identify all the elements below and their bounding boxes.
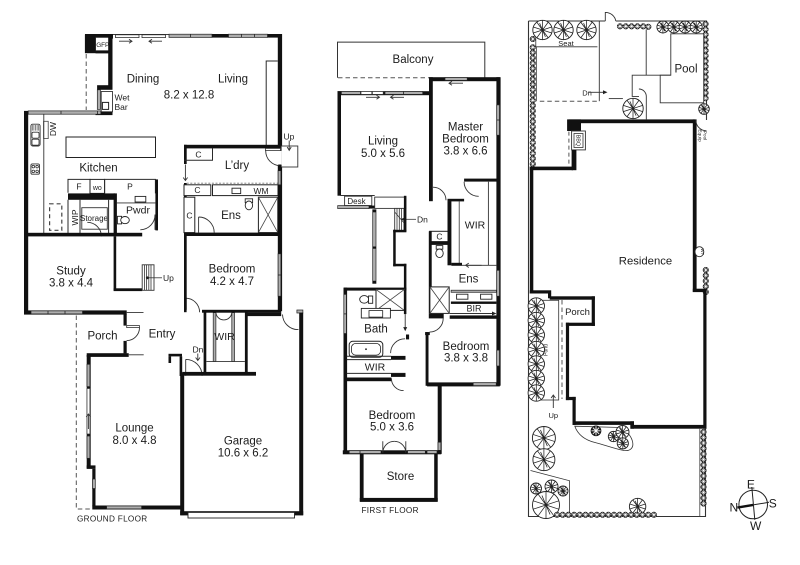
svg-text:BBQ: BBQ — [575, 135, 581, 147]
svg-text:WIR: WIR — [214, 331, 235, 343]
svg-text:GROUND FLOOR: GROUND FLOOR — [77, 515, 147, 524]
svg-text:Porch: Porch — [87, 331, 117, 343]
svg-text:Bedroom4.2 x 4.7: Bedroom4.2 x 4.7 — [209, 264, 256, 289]
svg-text:C: C — [186, 210, 192, 220]
svg-text:BIR: BIR — [466, 304, 482, 314]
svg-text:Garage10.6 x 6.2: Garage10.6 x 6.2 — [218, 436, 269, 460]
svg-text:C: C — [436, 232, 442, 242]
svg-text:WM: WM — [254, 186, 269, 196]
svg-text:Dn: Dn — [193, 344, 204, 354]
svg-text:Storage: Storage — [80, 214, 109, 223]
svg-text:Dn: Dn — [582, 88, 592, 97]
svg-text:Dn: Dn — [417, 214, 428, 224]
svg-text:Up: Up — [163, 273, 174, 283]
svg-text:Living: Living — [218, 74, 248, 86]
svg-text:Seat: Seat — [558, 39, 574, 48]
svg-text:W: W — [750, 519, 762, 533]
svg-text:GFP: GFP — [96, 42, 109, 49]
svg-text:C: C — [194, 185, 200, 195]
svg-text:PoolEquip: PoolEquip — [697, 129, 708, 142]
svg-text:S: S — [769, 497, 777, 511]
svg-text:Bedroom5.0 x 3.6: Bedroom5.0 x 3.6 — [369, 410, 416, 434]
svg-text:Desk: Desk — [347, 197, 366, 206]
svg-text:Kitchen: Kitchen — [79, 163, 117, 175]
svg-text:Porch: Porch — [565, 307, 590, 318]
svg-text:Entry: Entry — [149, 329, 176, 341]
svg-text:L’dry: L’dry — [225, 160, 250, 172]
svg-text:Pwdr: Pwdr — [126, 205, 150, 217]
svg-text:Bath: Bath — [364, 324, 388, 336]
svg-text:WT: WT — [700, 248, 705, 255]
svg-text:wo: wo — [92, 185, 102, 192]
svg-text:WIR: WIR — [465, 220, 486, 232]
svg-text:Up: Up — [549, 411, 559, 420]
svg-text:MasterBedroom3.8 x 6.6: MasterBedroom3.8 x 6.6 — [442, 122, 489, 158]
svg-text:Bedroom3.8 x 3.8: Bedroom3.8 x 3.8 — [443, 341, 490, 365]
svg-text:Store: Store — [387, 471, 415, 483]
svg-text:WIR: WIR — [365, 362, 386, 374]
svg-text:E: E — [747, 478, 755, 492]
svg-text:Ens: Ens — [221, 210, 241, 222]
svg-text:Balcony: Balcony — [393, 54, 434, 66]
svg-text:Dining: Dining — [127, 74, 160, 86]
svg-text:DW: DW — [48, 122, 58, 136]
svg-text:C: C — [195, 149, 201, 159]
svg-text:Pool: Pool — [674, 64, 697, 76]
svg-text:F: F — [76, 182, 81, 192]
svg-text:N: N — [729, 501, 738, 515]
svg-text:Residence: Residence — [619, 256, 672, 268]
svg-text:Ens: Ens — [459, 274, 479, 286]
svg-text:P: P — [127, 182, 133, 192]
svg-text:Lounge8.0 x 4.8: Lounge8.0 x 4.8 — [112, 423, 156, 448]
svg-text:Up: Up — [284, 132, 295, 142]
svg-text:FIRST FLOOR: FIRST FLOOR — [362, 506, 419, 515]
svg-text:8.2 x 12.8: 8.2 x 12.8 — [164, 90, 215, 102]
svg-text:WIP: WIP — [70, 209, 80, 225]
